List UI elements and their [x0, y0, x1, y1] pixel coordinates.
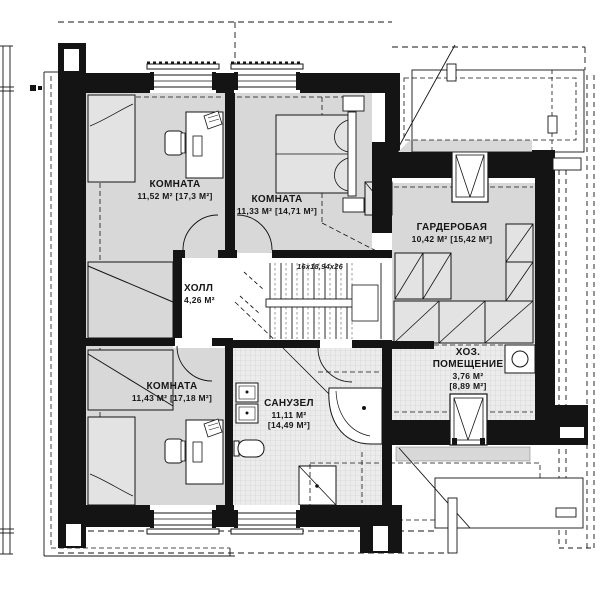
toilet	[238, 440, 264, 457]
bed-single-1	[88, 95, 135, 182]
washing-machine	[505, 345, 535, 373]
roof-window-1	[452, 150, 488, 202]
monitor-3	[193, 442, 202, 462]
closets	[88, 262, 173, 410]
chair-1	[165, 131, 183, 155]
chair-3	[165, 439, 183, 463]
bed-single-3	[88, 417, 135, 505]
roof-window-2	[450, 394, 487, 445]
roof-terrace	[397, 45, 584, 170]
window-bottom-2	[231, 505, 303, 534]
headboard	[348, 112, 356, 196]
window-bottom-1	[147, 505, 219, 534]
floor-plan: КОМНАТА 11,52 М² [17,3 М²] КОМНАТА 11,33…	[0, 0, 600, 600]
nightstand-1	[343, 96, 364, 111]
monitor-1	[193, 136, 202, 156]
window-top-2	[231, 63, 303, 94]
window-top-1	[147, 63, 219, 94]
stairs-dimension-label: 16x18,94x26	[270, 262, 370, 271]
nightstand-2	[343, 198, 364, 212]
plan-drawing	[0, 0, 600, 600]
